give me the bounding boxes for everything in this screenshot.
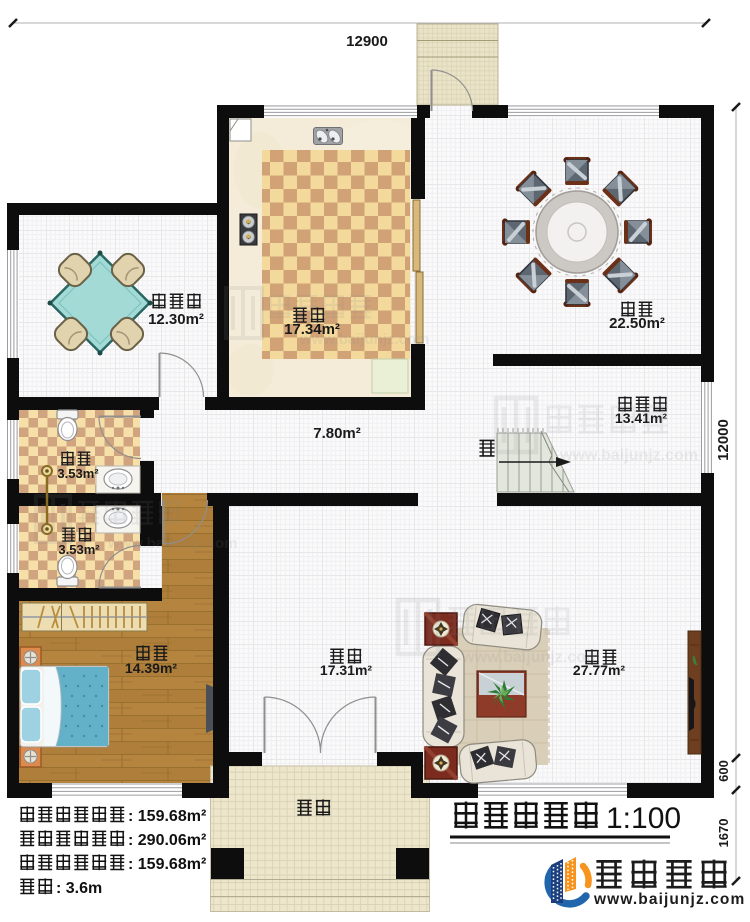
svg-text:1670: 1670 [716, 819, 731, 848]
svg-text:www.baijunjz.com: www.baijunjz.com [107, 535, 237, 552]
svg-text:1:100: 1:100 [606, 802, 681, 835]
svg-text:14.39m²: 14.39m² [125, 660, 177, 676]
svg-text:3.53m²: 3.53m² [58, 542, 100, 557]
svg-text:: 290.06m²: : 290.06m² [128, 832, 206, 849]
svg-text:22.50m²: 22.50m² [609, 315, 665, 332]
svg-text:www.baijunjz.com: www.baijunjz.com [559, 447, 698, 464]
svg-text:3.53m²: 3.53m² [57, 466, 99, 481]
svg-text:: 3.6m: : 3.6m [56, 880, 102, 897]
svg-text:12000: 12000 [715, 419, 732, 461]
svg-text:12.30m²: 12.30m² [148, 311, 204, 328]
svg-text:www.baijunjz.com: www.baijunjz.com [461, 649, 600, 666]
svg-text:: 159.68m²: : 159.68m² [128, 856, 206, 873]
svg-text:17.31m²: 17.31m² [320, 662, 372, 678]
svg-text:www.baijunjz.com: www.baijunjz.com [299, 331, 429, 348]
svg-text:12900: 12900 [346, 33, 388, 50]
svg-text:: 159.68m²: : 159.68m² [128, 808, 206, 825]
svg-text:www.baijunjz.com: www.baijunjz.com [593, 891, 745, 908]
svg-text:7.80m²: 7.80m² [313, 425, 361, 442]
svg-text:600: 600 [716, 760, 731, 782]
